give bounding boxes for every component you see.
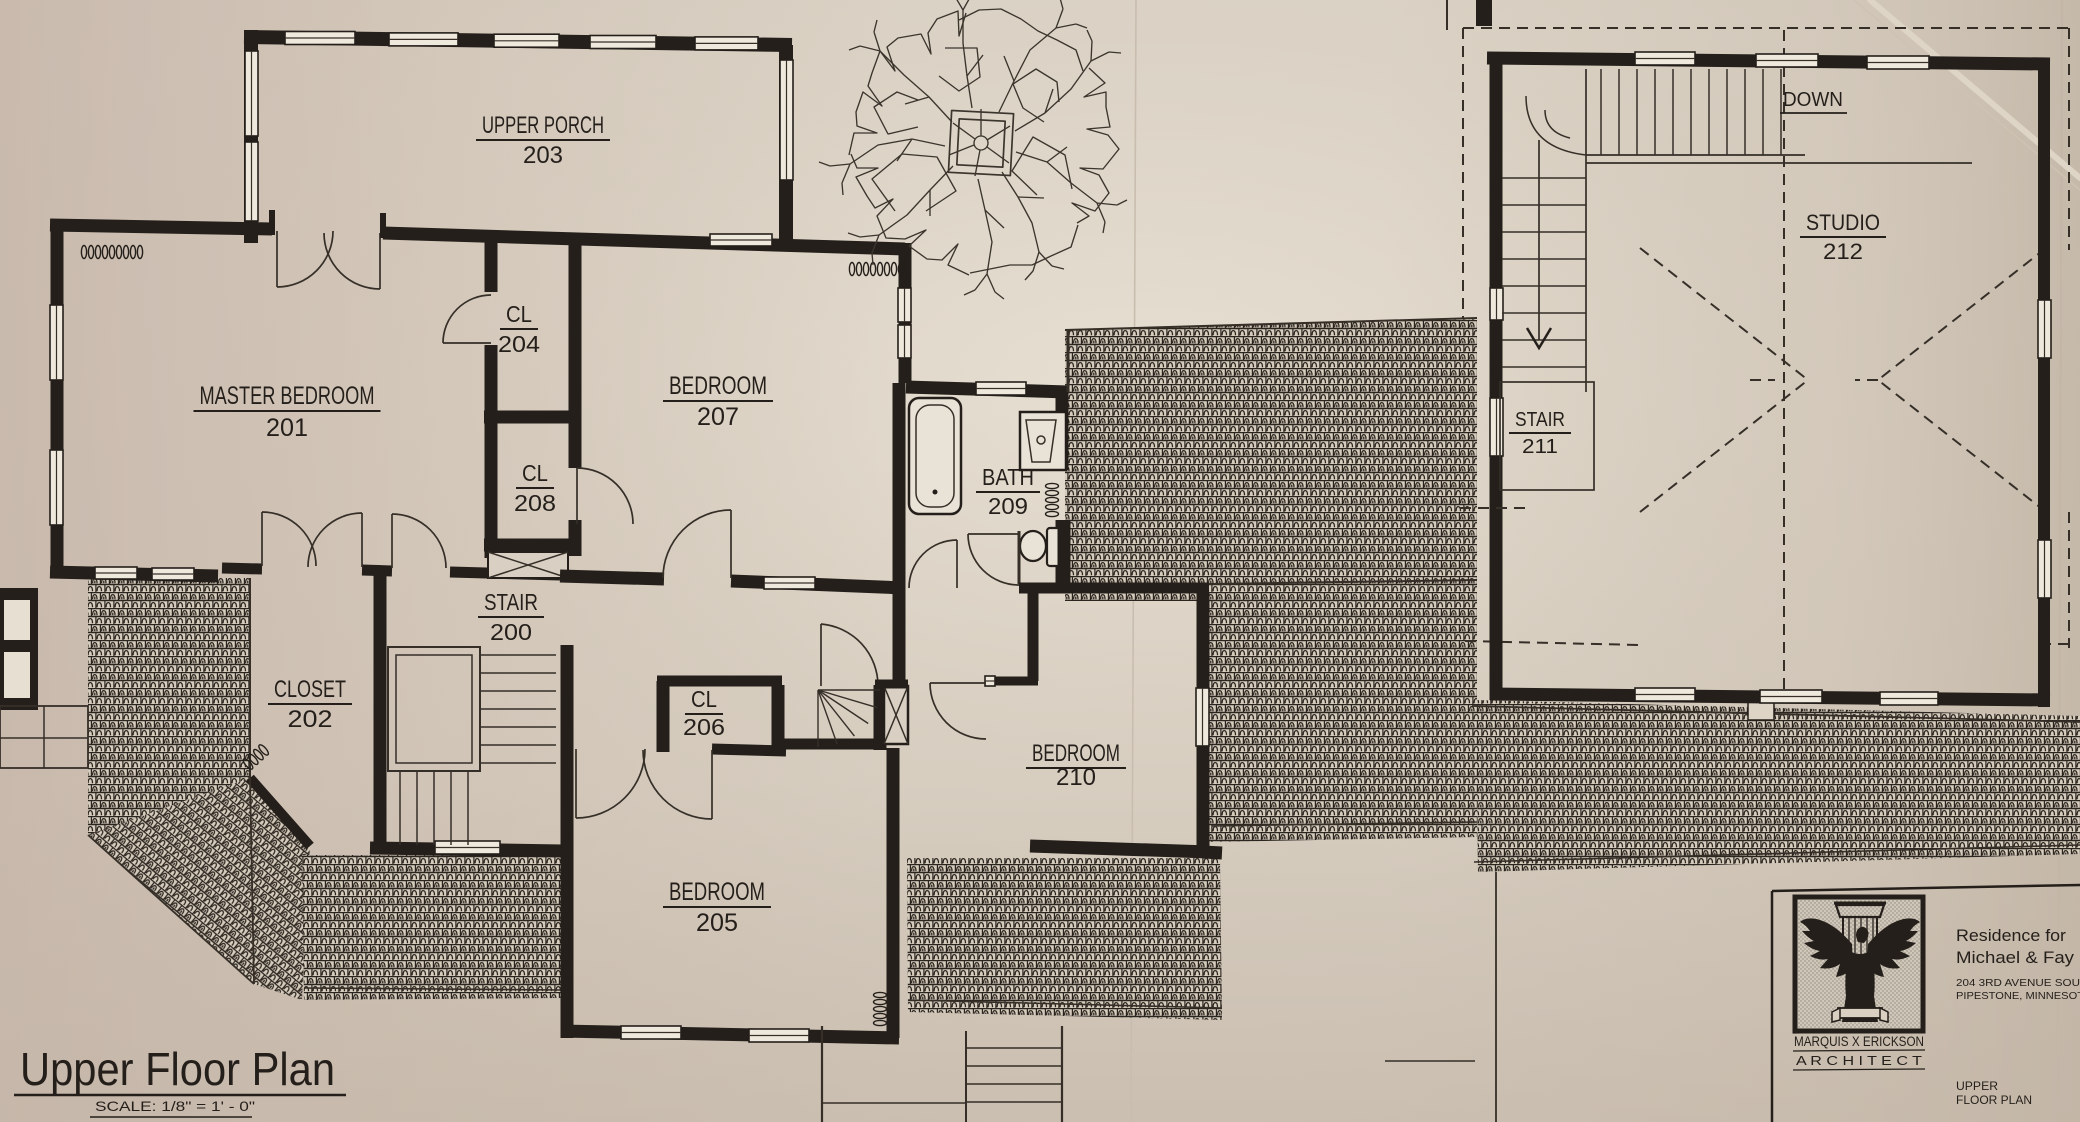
svg-text:STAIR: STAIR — [484, 589, 538, 615]
svg-text:204: 204 — [498, 331, 540, 357]
svg-text:203: 203 — [523, 142, 563, 169]
svg-text:UPPER: UPPER — [1956, 1081, 1998, 1093]
svg-text:BEDROOM: BEDROOM — [1032, 740, 1120, 767]
svg-text:UPPER PORCH: UPPER PORCH — [482, 112, 604, 139]
svg-text:206: 206 — [683, 714, 725, 740]
svg-text:Upper Floor Plan: Upper Floor Plan — [20, 1043, 335, 1095]
svg-text:209: 209 — [988, 493, 1028, 519]
svg-text:202: 202 — [288, 706, 333, 733]
svg-text:A R C H I T E C T: A R C H I T E C T — [1796, 1053, 1922, 1068]
svg-text:PIPESTONE, MINNESOT: PIPESTONE, MINNESOT — [1956, 990, 2080, 1002]
svg-text:Michael & Fay: Michael & Fay — [1956, 948, 2075, 967]
svg-text:MARQUIS X ERICKSON: MARQUIS X ERICKSON — [1794, 1034, 1924, 1049]
svg-text:SCALE: 1/8" = 1' - 0": SCALE: 1/8" = 1' - 0" — [95, 1098, 255, 1114]
svg-text:200: 200 — [490, 619, 532, 645]
svg-text:STAIR: STAIR — [1515, 409, 1565, 431]
svg-text:207: 207 — [697, 403, 739, 431]
svg-text:FLOOR PLAN: FLOOR PLAN — [1956, 1095, 2032, 1107]
svg-text:208: 208 — [514, 490, 556, 516]
svg-text:CLOSET: CLOSET — [274, 676, 346, 703]
svg-text:212: 212 — [1823, 239, 1863, 264]
svg-text:BATH: BATH — [982, 464, 1034, 490]
svg-text:CL: CL — [522, 460, 548, 486]
svg-text:MASTER BEDROOM: MASTER BEDROOM — [200, 382, 375, 410]
svg-text:Residence for: Residence for — [1956, 926, 2066, 945]
svg-text:205: 205 — [696, 909, 738, 937]
svg-text:204 3RD AVENUE SOU: 204 3RD AVENUE SOU — [1956, 977, 2080, 989]
svg-text:201: 201 — [266, 414, 308, 442]
svg-text:210: 210 — [1056, 764, 1096, 791]
svg-text:DOWN: DOWN — [1783, 89, 1843, 111]
svg-text:BEDROOM: BEDROOM — [669, 878, 765, 906]
svg-text:BEDROOM: BEDROOM — [669, 372, 767, 400]
svg-text:STUDIO: STUDIO — [1806, 210, 1880, 235]
svg-text:211: 211 — [1522, 436, 1558, 458]
svg-text:CL: CL — [506, 301, 532, 327]
svg-text:CL: CL — [691, 686, 717, 712]
